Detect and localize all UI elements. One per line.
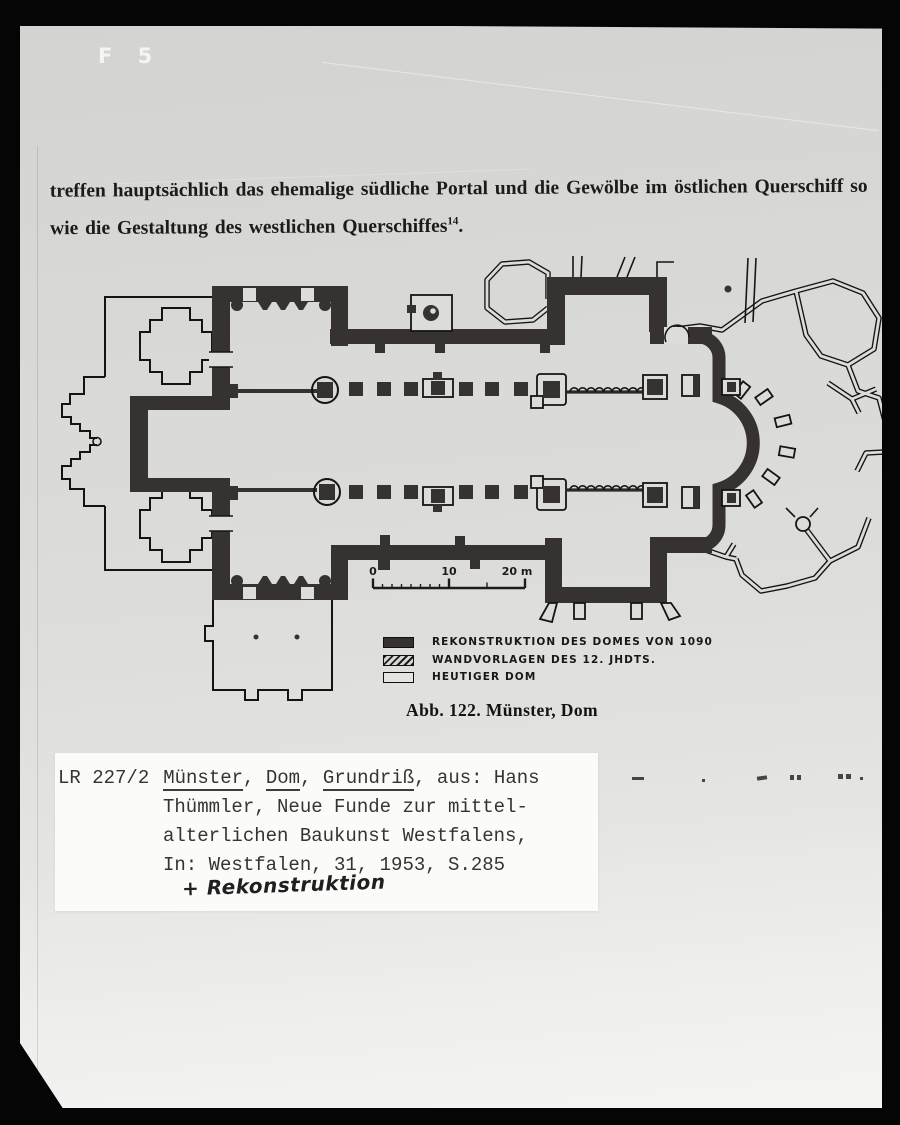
title-keyword: Grundriß	[323, 767, 414, 791]
print-fragment	[790, 775, 794, 780]
legend-row-wall-pilasters: WANDVORLAGEN DES 12. JHDTS.	[383, 654, 656, 666]
floor-plan-figure: 0 10 20 m	[20, 26, 882, 1108]
legend-label: REKONSTRUKTION DES DOMES VON 1090	[432, 636, 713, 648]
print-fragment	[860, 777, 863, 780]
photo-top-border	[0, 0, 900, 29]
card-line-2: Thümmler, Neue Funde zur mittel-	[163, 796, 528, 818]
card-line-1: LR 227/2Münster, Dom, Grundriß, aus: Han…	[58, 767, 540, 789]
print-fragment	[846, 774, 851, 779]
legend-label: WANDVORLAGEN DES 12. JHDTS.	[432, 654, 656, 666]
print-fragment	[797, 775, 801, 780]
nave-piers	[232, 372, 740, 512]
legend-swatch-solid	[383, 637, 414, 648]
title-keyword: Dom	[266, 767, 300, 791]
print-fragment	[702, 779, 705, 782]
photo-area: F 5 treffen hauptsächlich das ehemalige …	[20, 26, 882, 1108]
scale-label-0: 0	[369, 565, 377, 578]
catalog-card: LR 227/2Münster, Dom, Grundriß, aus: Han…	[55, 753, 598, 911]
stair-turret	[407, 295, 452, 331]
legend-swatch-outline	[383, 672, 414, 683]
figure-caption: Abb. 122. Münster, Dom	[372, 700, 632, 721]
legend-swatch-hatched	[383, 655, 414, 666]
legend-label: HEUTIGER DOM	[432, 671, 536, 683]
print-fragment	[838, 774, 843, 779]
title-keyword: Münster	[163, 767, 243, 791]
legend-row-reconstruction: REKONSTRUKTION DES DOMES VON 1090	[383, 636, 713, 648]
se-buttresses	[540, 603, 680, 622]
archival-photo-scan: F 5 treffen hauptsächlich das ehemalige …	[0, 0, 900, 1125]
scale-bar: 0 10 20 m	[369, 565, 532, 588]
scale-label-20m: 20 m	[502, 565, 533, 578]
scale-label-10: 10	[441, 565, 457, 578]
print-fragment	[632, 777, 644, 780]
legend-row-current: HEUTIGER DOM	[383, 671, 536, 683]
card-line-3: alterlichen Baukunst Westfalens,	[163, 825, 528, 847]
apse-wall	[699, 337, 753, 546]
sacristy-outline	[205, 600, 332, 700]
inventory-number: LR 227/2	[58, 767, 149, 789]
